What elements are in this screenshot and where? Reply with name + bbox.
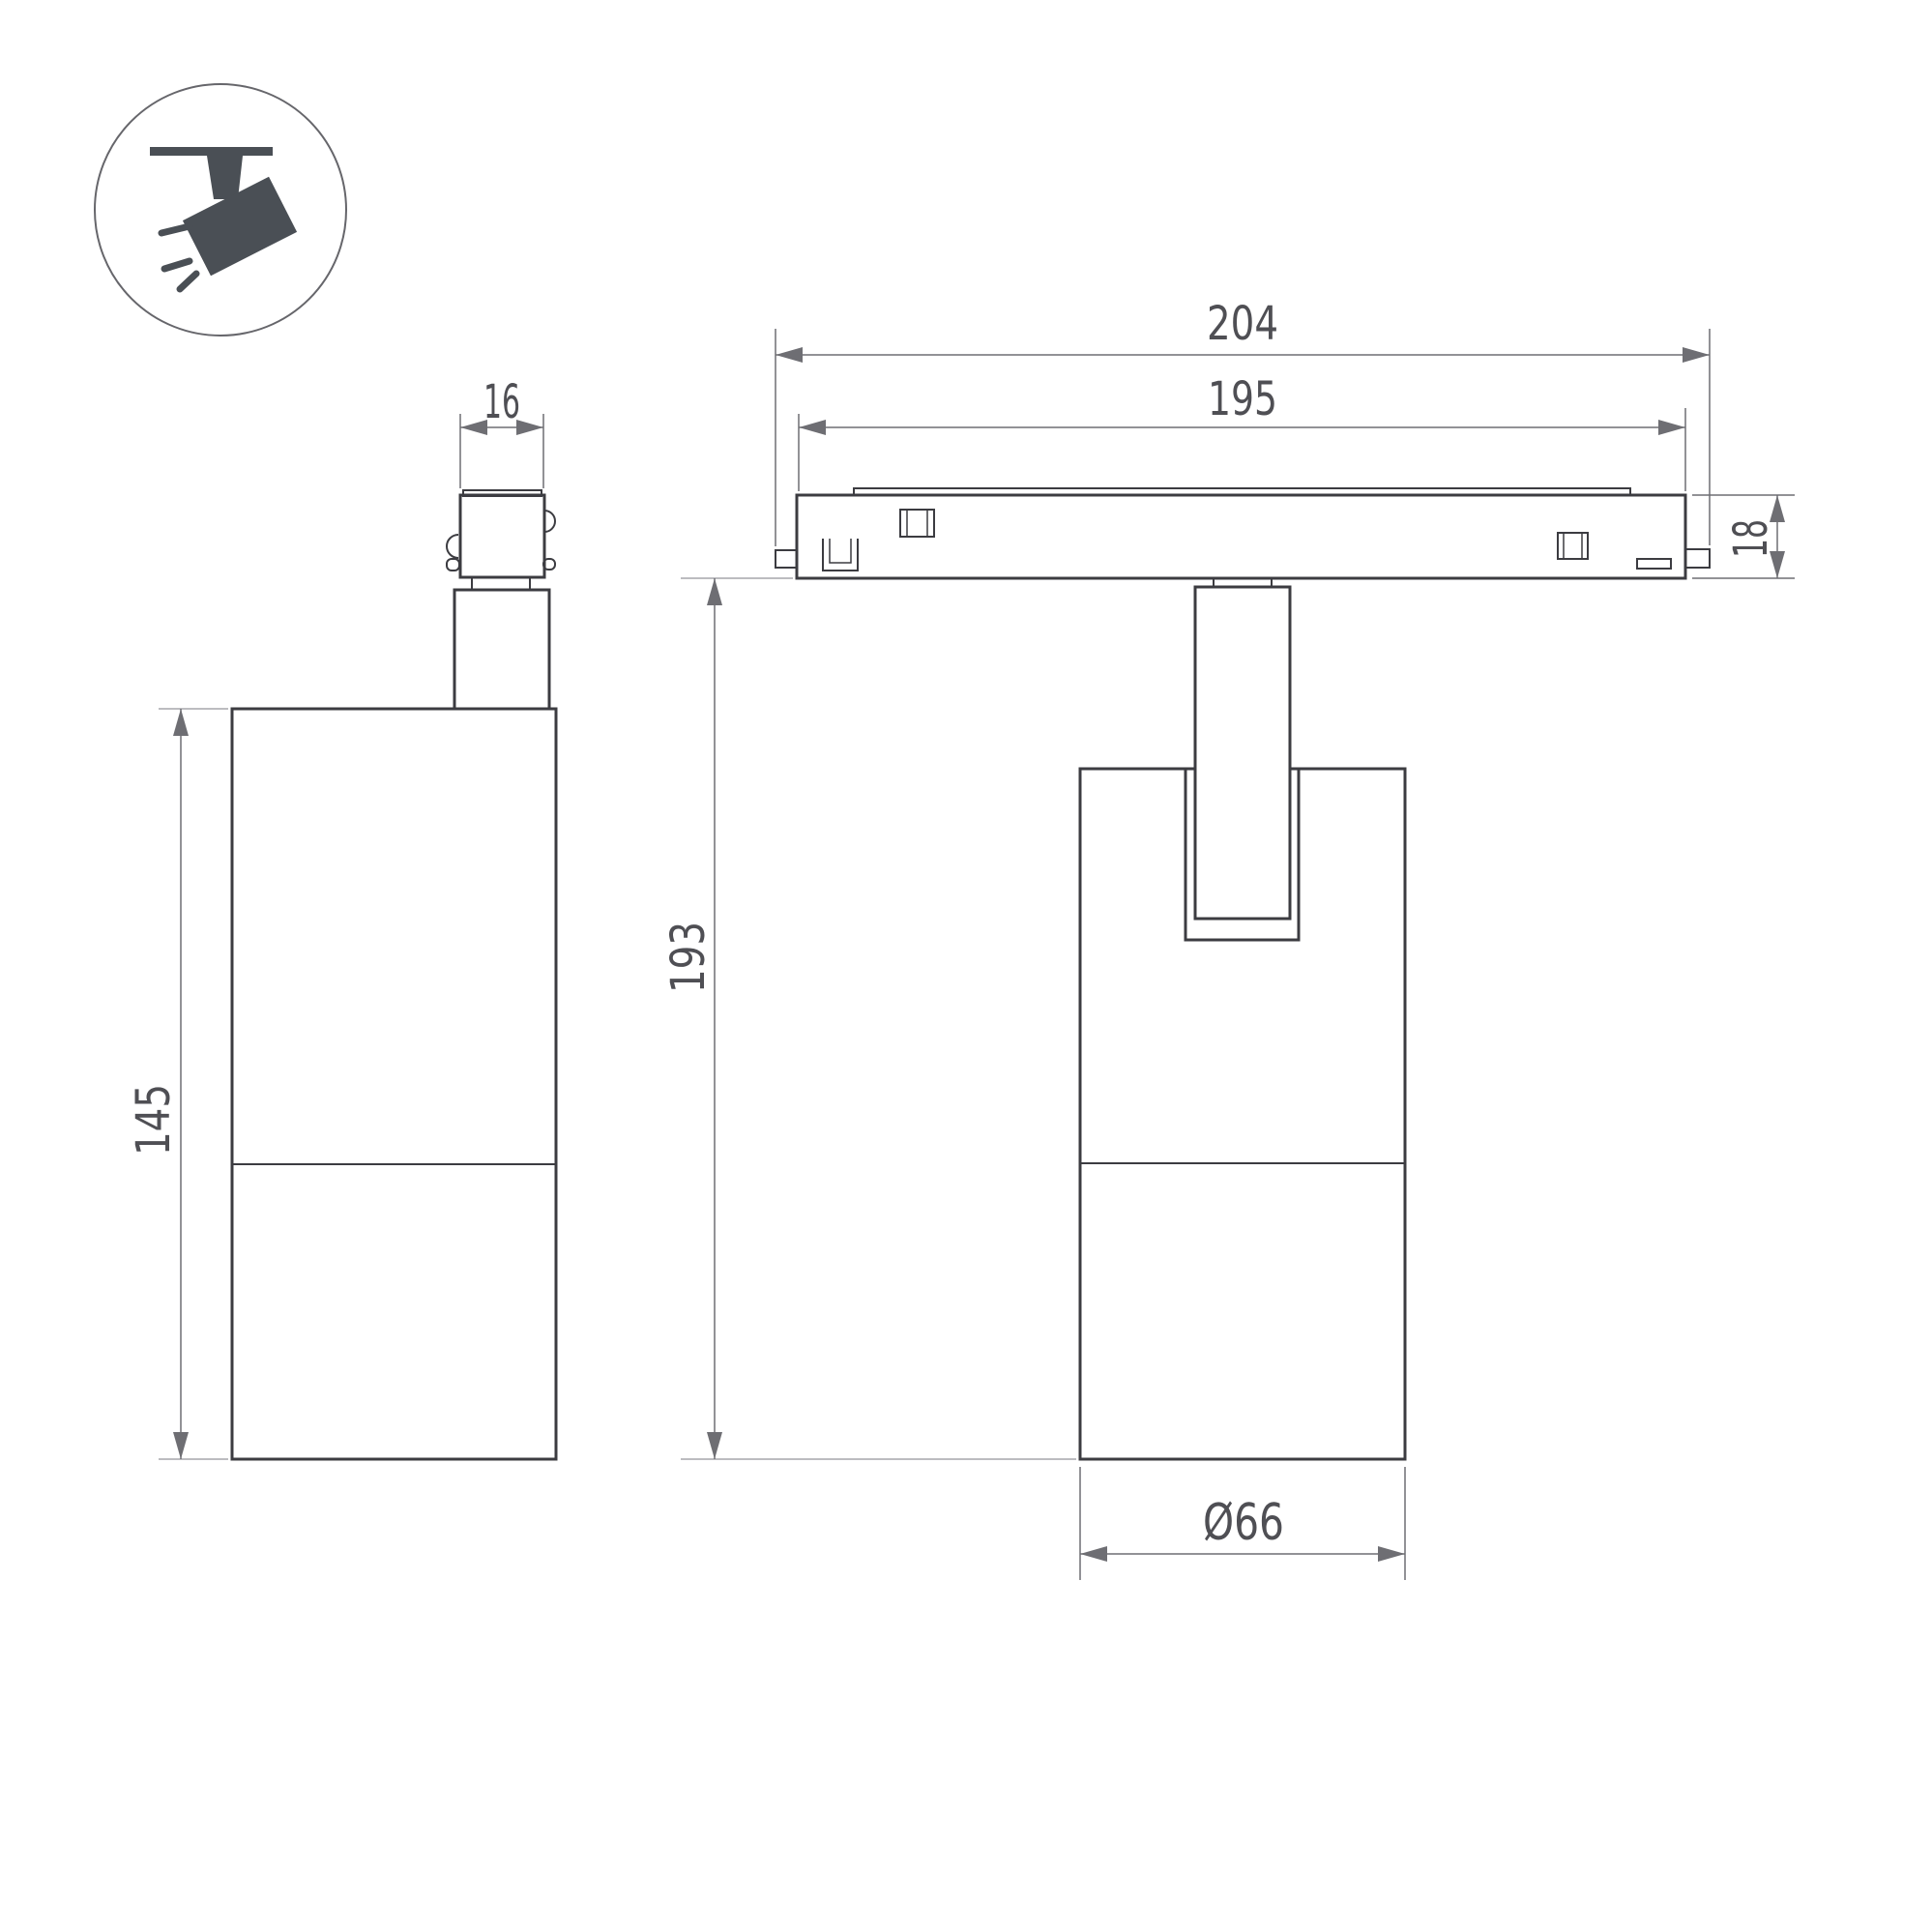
dim-track-body-length-label: 195: [1208, 372, 1277, 426]
dim-body-diameter-label: Ø66: [1203, 1494, 1284, 1552]
window-frame: [1558, 533, 1588, 559]
arrowhead-right: [1658, 420, 1685, 435]
icon-stem: [207, 156, 243, 199]
arrowhead-up: [173, 709, 189, 736]
dim-body-height-label: 145: [127, 1084, 181, 1156]
arrowhead-down: [173, 1432, 189, 1459]
track-clip-outer: [823, 539, 858, 571]
light-ray: [164, 261, 190, 269]
side-stem: [454, 590, 549, 709]
dim-body-height: 145: [127, 709, 228, 1459]
dim-overall-height: 193: [661, 578, 1076, 1459]
dim-track-height: 18: [1692, 495, 1795, 578]
side-lamp-body: [232, 709, 556, 1459]
dim-track-body-length: 195: [799, 372, 1685, 491]
arrowhead-up: [1770, 495, 1785, 522]
arrowhead-right: [1378, 1546, 1405, 1562]
front-stem: [1195, 587, 1290, 919]
track-clip-inner: [830, 539, 851, 563]
adapter-body: [460, 495, 544, 577]
dimension-drawing-page: 16 145: [0, 0, 1932, 1932]
light-ray: [161, 226, 190, 233]
arrowhead-down: [707, 1432, 722, 1459]
light-ray: [180, 274, 196, 289]
adapter-left-latch-arc: [447, 535, 458, 558]
side-track-adapter: [447, 490, 555, 590]
arrowhead-up: [707, 578, 722, 605]
dim-body-diameter: Ø66: [1080, 1467, 1405, 1580]
front-view: 204 195: [661, 297, 1795, 1580]
dim-adapter-width-label: 16: [483, 375, 520, 429]
track-spotlight-icon: [95, 84, 346, 336]
adapter-right-latch-arc: [544, 511, 555, 532]
dim-track-full-length-label: 204: [1207, 297, 1278, 351]
arrowhead-left: [1080, 1546, 1107, 1562]
icon-ceiling-bar: [150, 147, 273, 156]
side-view: 16 145: [127, 375, 556, 1459]
track-window-right: [1558, 533, 1588, 559]
dim-overall-height-label: 193: [661, 922, 716, 993]
adapter-left-ear: [447, 559, 459, 571]
arrowhead-left: [799, 420, 826, 435]
adapter-neck: [472, 577, 530, 590]
arrowhead-right: [1683, 347, 1710, 363]
arrowhead-right: [516, 420, 543, 435]
dim-track-height-label: 18: [1724, 519, 1778, 558]
front-track-rail: [776, 488, 1710, 587]
track-window-left: [900, 510, 934, 537]
technical-drawing-canvas: 16 145: [0, 0, 1932, 1932]
window-frame: [900, 510, 934, 537]
front-lamp: [1080, 587, 1405, 1459]
arrowhead-left: [776, 347, 803, 363]
track-slot-opening: [1637, 559, 1671, 569]
icon-lamp-head: [183, 177, 297, 276]
track-left-connector-pin: [776, 550, 797, 568]
dim-adapter-width: 16: [460, 375, 543, 488]
track-right-connector-pin: [1685, 549, 1710, 568]
